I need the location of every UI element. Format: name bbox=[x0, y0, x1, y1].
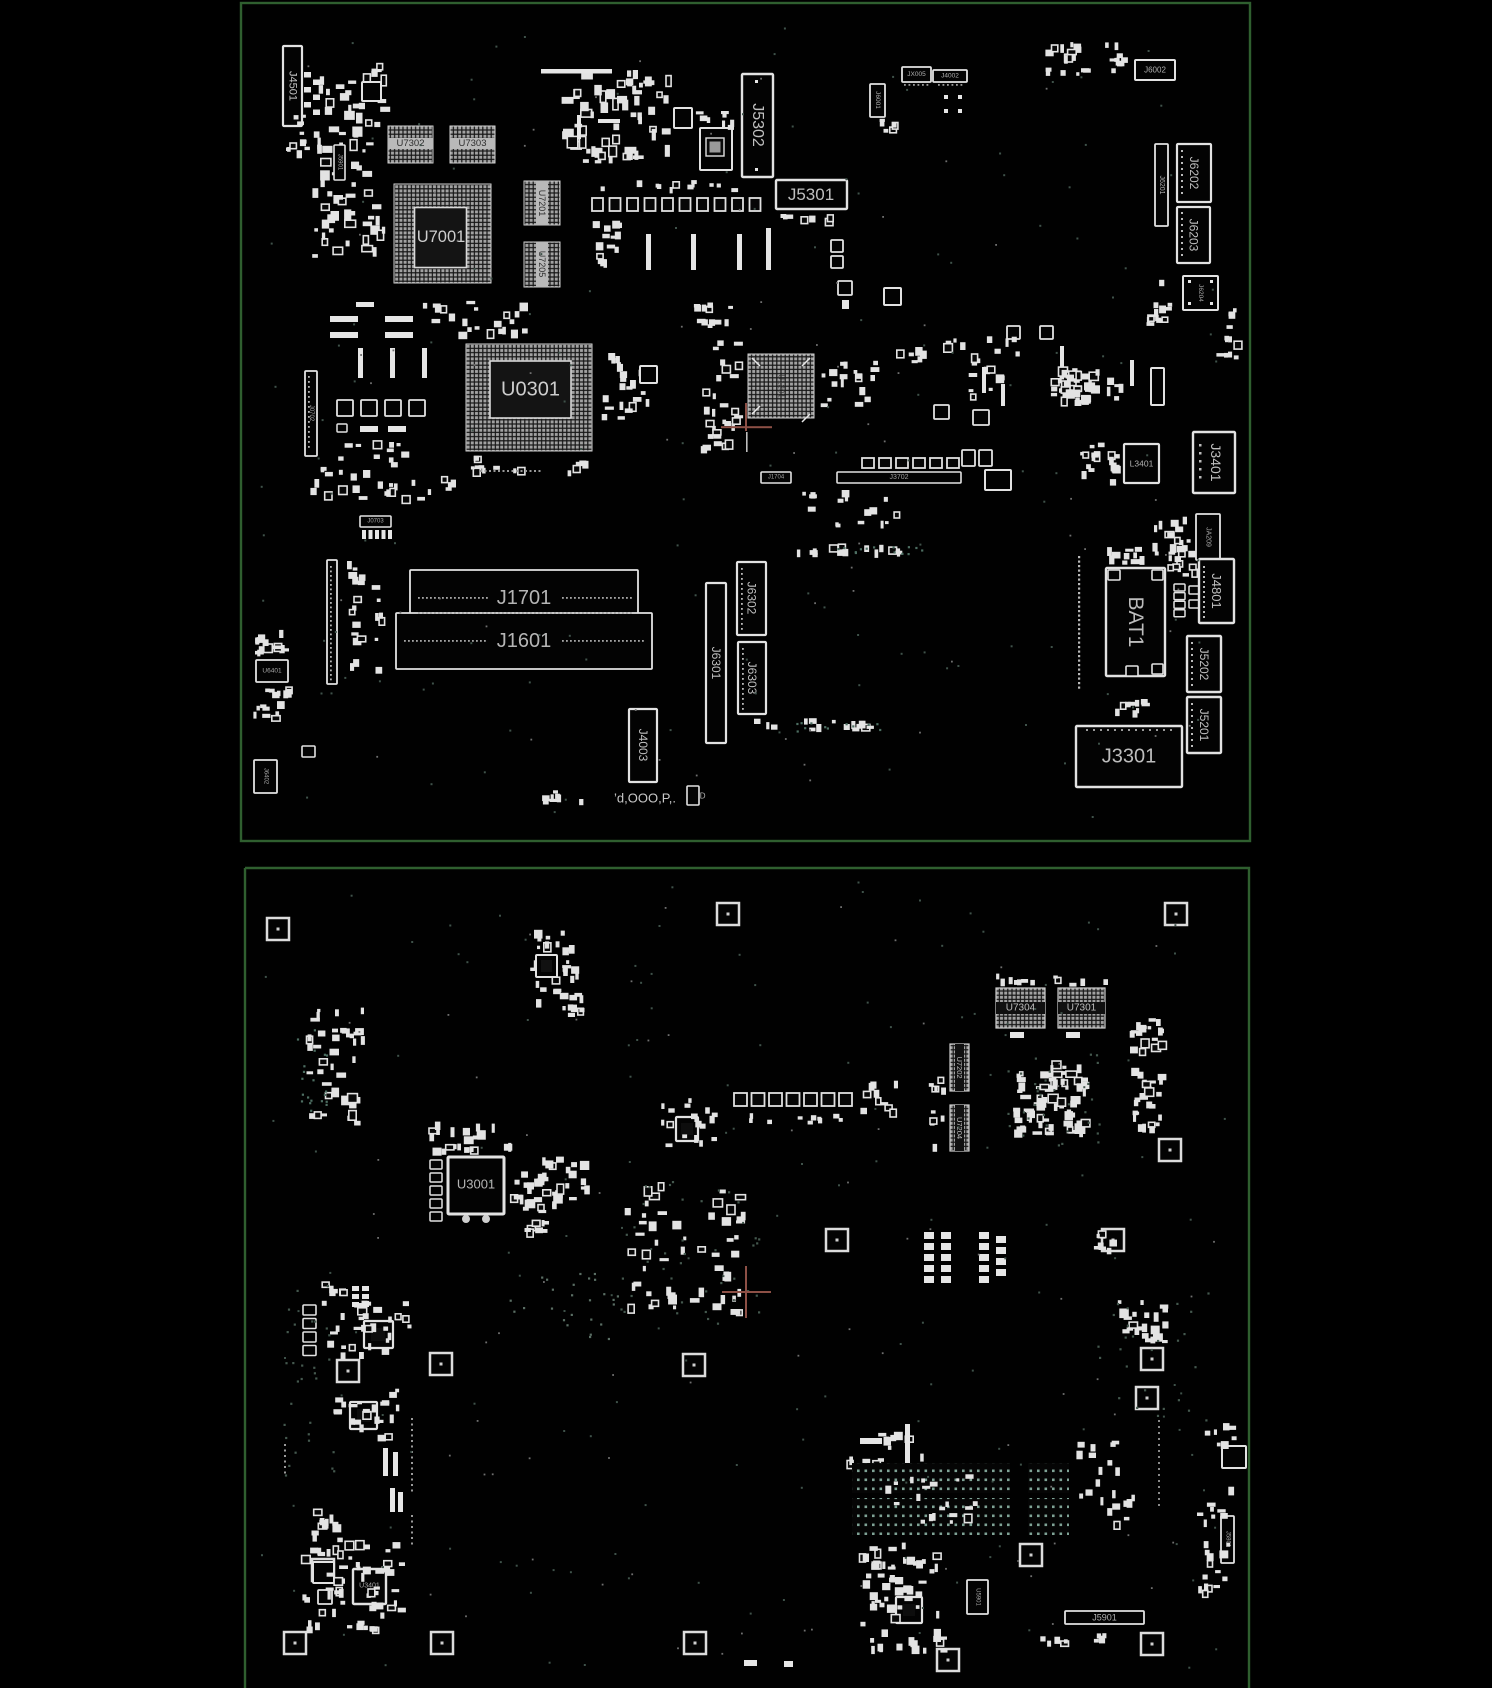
svg-text:J1601: J1601 bbox=[497, 630, 552, 652]
svg-text:J4801: J4801 bbox=[1209, 573, 1224, 608]
svg-text:J1704: J1704 bbox=[768, 475, 785, 481]
svg-text:U7303: U7303 bbox=[459, 138, 487, 149]
svg-text:J6302: J6302 bbox=[745, 582, 759, 615]
svg-text:J5901: J5901 bbox=[337, 154, 343, 171]
svg-text:U7202: U7202 bbox=[955, 1056, 964, 1078]
svg-text:JX005: JX005 bbox=[907, 71, 926, 78]
svg-text:J0703: J0703 bbox=[367, 519, 384, 525]
svg-text:JA209: JA209 bbox=[1205, 527, 1212, 547]
svg-text:J5901: J5901 bbox=[1092, 1613, 1117, 1623]
svg-text:U3001: U3001 bbox=[457, 1177, 495, 1192]
svg-text:U7001: U7001 bbox=[417, 228, 466, 246]
svg-text:J6002: J6002 bbox=[1144, 66, 1166, 75]
svg-text:J4003: J4003 bbox=[636, 729, 650, 762]
svg-text:U7302: U7302 bbox=[397, 138, 425, 149]
svg-text:L3401: L3401 bbox=[1130, 459, 1154, 469]
svg-text:BAT1: BAT1 bbox=[1124, 597, 1147, 648]
svg-text:J3401: J3401 bbox=[1208, 443, 1224, 481]
svg-text:J6202: J6202 bbox=[1187, 157, 1201, 190]
svg-text:J6203: J6203 bbox=[1187, 219, 1201, 252]
svg-text:J1701: J1701 bbox=[497, 587, 552, 609]
svg-text:U5901: U5901 bbox=[975, 1588, 981, 1606]
svg-text:J5302: J5302 bbox=[749, 103, 766, 147]
svg-text:U0301: U0301 bbox=[501, 379, 560, 401]
svg-text:J6301: J6301 bbox=[709, 647, 723, 680]
svg-text:J6303: J6303 bbox=[745, 662, 759, 695]
svg-text:J4002: J4002 bbox=[941, 73, 959, 80]
svg-text:’d,OOO,P,.: ’d,OOO,P,. bbox=[614, 791, 676, 806]
svg-text:U7301: U7301 bbox=[1067, 1003, 1097, 1014]
svg-text:J4501: J4501 bbox=[287, 71, 299, 101]
svg-text:J6204: J6204 bbox=[1197, 284, 1204, 302]
svg-text:U1201: U1201 bbox=[777, 374, 786, 398]
svg-text:J5202: J5202 bbox=[1197, 648, 1211, 681]
svg-text:J6402: J6402 bbox=[263, 768, 269, 785]
svg-text:J3702: J3702 bbox=[889, 474, 908, 481]
svg-text:J6001: J6001 bbox=[874, 91, 881, 109]
svg-text:U6401: U6401 bbox=[262, 668, 282, 675]
svg-text:J5201: J5201 bbox=[1197, 709, 1211, 742]
svg-text:U7304: U7304 bbox=[1006, 1003, 1036, 1014]
svg-text:U7201: U7201 bbox=[537, 190, 547, 217]
svg-text:J5301: J5301 bbox=[788, 185, 834, 204]
svg-text:J3301: J3301 bbox=[1102, 746, 1157, 768]
svg-text:J6201: J6201 bbox=[1158, 175, 1165, 194]
